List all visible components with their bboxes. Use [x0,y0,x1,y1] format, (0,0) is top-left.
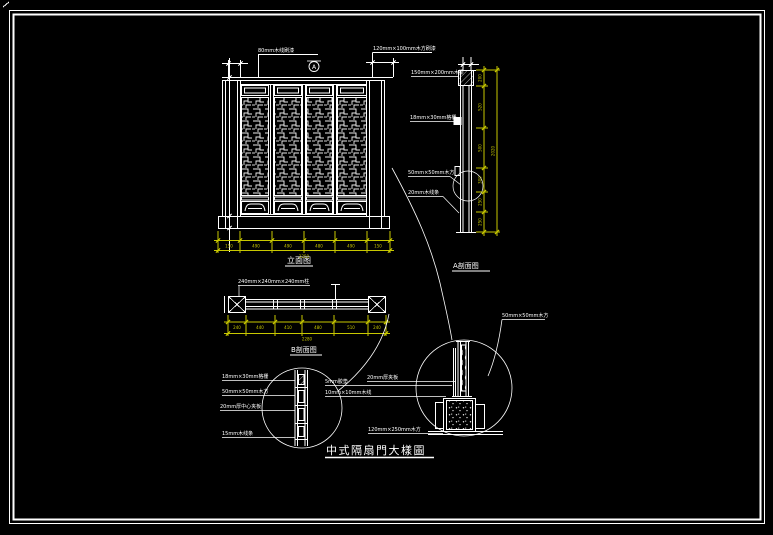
detail-callout-circle [453,171,483,201]
section-a-view [454,57,479,233]
door-leaf-panel [307,86,333,214]
dim-total-text: 2280 [302,337,313,342]
dim-text: 410 [284,325,292,330]
cad-viewport[interactable]: A 150 490 490 480 490 150 2250 80mm木线刷漆 … [0,0,773,535]
dim-text: 490 [347,244,355,249]
detail-left-linework [295,370,308,446]
dim-text: 520 [478,103,483,111]
section-marker-letter: A [312,64,317,71]
annotation-ld-trim: 15mm木线条 [222,430,253,437]
dim-text: 480 [314,325,322,330]
annotation-rd-base: 120mm×250mm木方 [368,426,421,433]
annotation-sa-trim: 20mm木线条 [408,189,439,196]
dim-text: 240 [233,325,241,330]
annotation-sa-lattice: 18mm×30mm格栅 [410,114,456,121]
section-b-dimensions [224,315,390,336]
section-b-view [225,285,386,314]
annotation-elev-top-left: 80mm木线刷漆 [258,47,294,54]
door-leaf-panel [242,86,269,214]
dim-text: 500 [478,144,483,152]
annotation-rd-board: 20mm厚夹板 [367,374,398,381]
dim-text: 150 [374,244,382,249]
annotation-ld-core: 20mm厚中心夹板 [220,403,261,410]
dim-text: 480 [315,244,323,249]
view-label-elevation: 立面图 [287,255,311,265]
view-label-section-a: A剖面图 [453,261,479,270]
door-leaf-panel [275,86,302,214]
dim-total-text: 2020 [491,145,496,156]
dim-text: 150 [225,244,233,249]
annotation-rd-line: 10mm×10mm木线 [325,389,371,396]
section-b-leaders [238,286,310,298]
dim-text: 200 [478,74,483,82]
elevation-view [218,58,399,252]
annotation-elev-top-right: 120mm×100mm木方刷漆 [373,45,436,52]
annotation-ld-lattice: 18mm×30mm格栅 [222,373,268,380]
dim-text: 490 [284,244,292,249]
annotation-sa-block: 50mm×50mm木方 [408,169,454,176]
annotation-ld-block: 50mm×50mm木方 [222,388,268,395]
detail-right-linework [428,341,503,435]
annotation-sb-post: 240mm×240mm×240mm柱 [238,278,309,285]
dim-text: 250 [478,218,483,226]
dim-text: 490 [252,244,260,249]
dim-text: 240 [373,325,381,330]
door-leaf-panel [338,86,367,214]
detail-right-leaders [325,320,545,434]
annotation-rd-pad: 5mm胶垫 [325,378,348,385]
corner-mark [3,2,9,7]
dim-text: 440 [256,325,264,330]
dim-text: 250 [478,198,483,206]
drawing-title: 中式隔扇門大樣圖 [326,443,426,457]
dim-text: 510 [347,325,355,330]
elevation-dimensions [214,231,394,253]
cad-drawing-canvas[interactable]: A 150 490 490 480 490 150 2250 80mm木线刷漆 … [0,0,773,535]
elevation-leaders [258,53,432,78]
annotation-sa-beam: 150mm×200mm木梁 [411,69,464,76]
dim-text: 300 [478,176,483,184]
annotation-rd-block: 50mm×50mm木方 [502,312,548,319]
view-label-section-b: B剖面图 [291,345,317,354]
